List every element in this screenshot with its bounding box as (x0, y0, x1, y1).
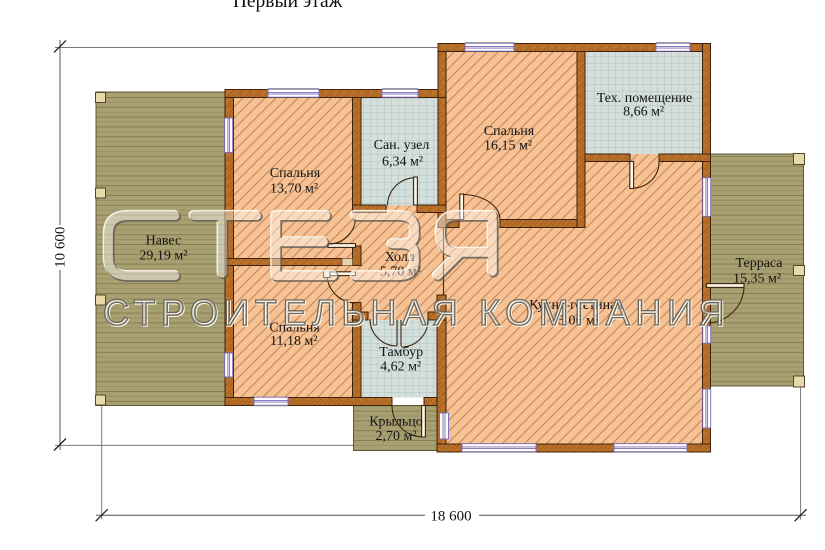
svg-text:18 600: 18 600 (430, 508, 471, 524)
svg-text:11,18 м²: 11,18 м² (270, 334, 318, 349)
svg-text:Первый этаж: Первый этаж (233, 0, 343, 12)
svg-text:10 600: 10 600 (53, 227, 69, 268)
svg-text:2,70 м²: 2,70 м² (375, 429, 416, 444)
svg-text:15,35 м²: 15,35 м² (733, 272, 781, 287)
svg-text:Спальня: Спальня (484, 124, 535, 139)
svg-text:Терраса: Терраса (735, 256, 783, 271)
svg-text:6,34 м²: 6,34 м² (382, 155, 423, 170)
svg-text:13,70 м²: 13,70 м² (270, 182, 318, 197)
svg-text:8,66 м²: 8,66 м² (623, 105, 664, 120)
svg-text:СТРОИТЕЛЬНАЯ КОМПАНИЯ: СТРОИТЕЛЬНАЯ КОМПАНИЯ (103, 292, 730, 333)
svg-text:4,62 м²: 4,62 м² (380, 360, 421, 375)
svg-text:16,15 м²: 16,15 м² (484, 139, 532, 154)
svg-text:29,19 м²: 29,19 м² (139, 249, 187, 264)
svg-text:Спальня: Спальня (270, 166, 321, 181)
svg-text:Сан. узел: Сан. узел (374, 138, 430, 153)
svg-text:Крыльцо: Крыльцо (369, 415, 423, 430)
svg-text:Тамбур: Тамбур (379, 345, 423, 360)
svg-text:Навес: Навес (146, 234, 182, 249)
